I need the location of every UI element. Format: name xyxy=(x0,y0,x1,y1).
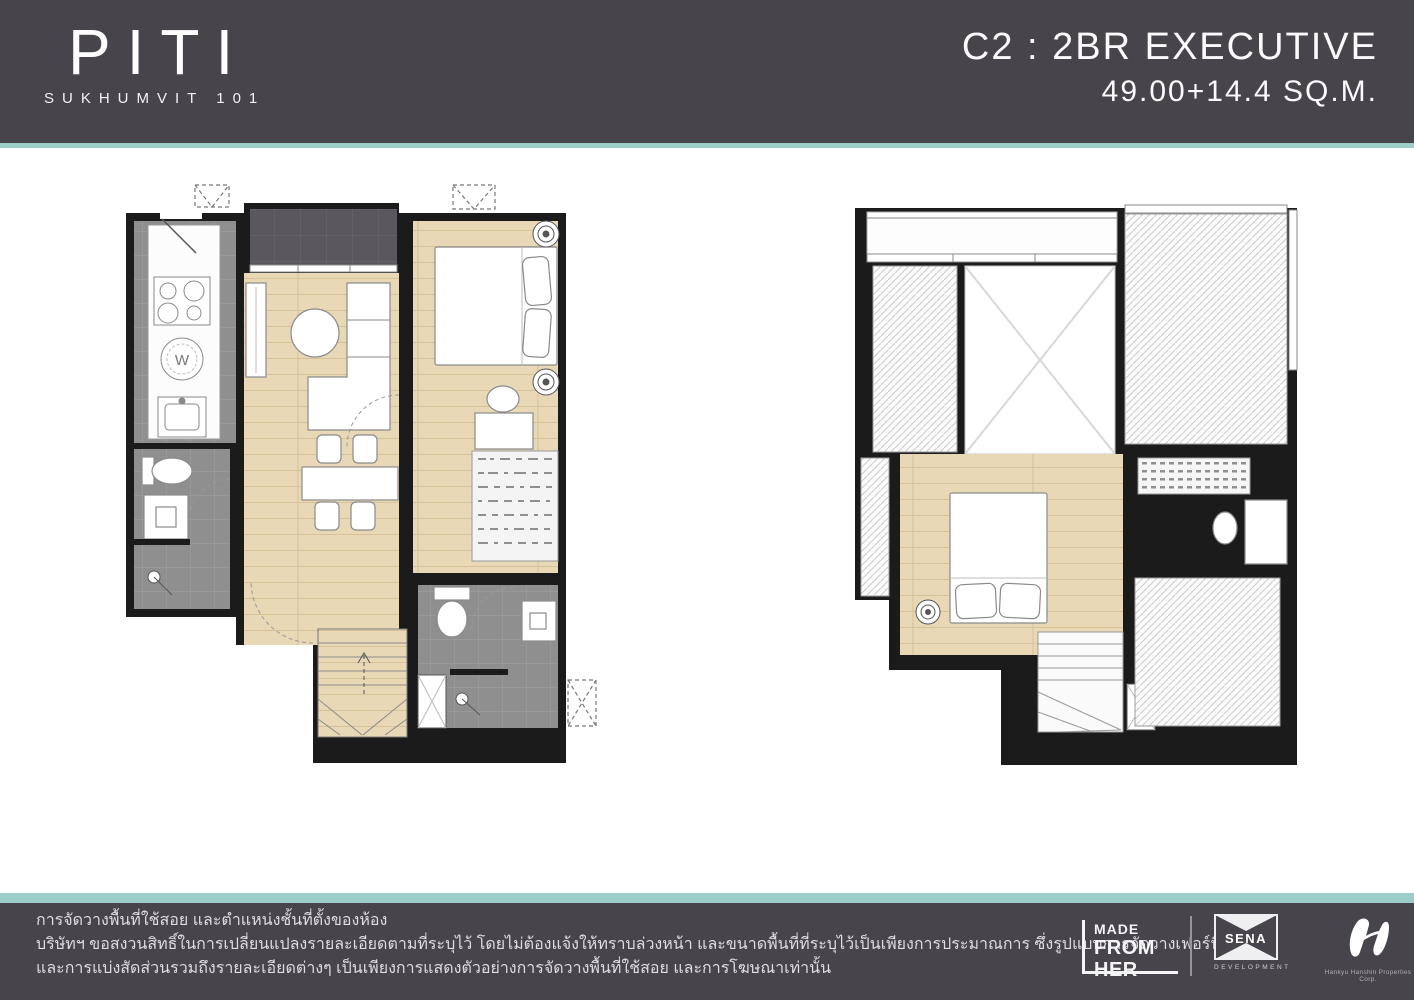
disclaimer-line: การจัดวางพื้นที่ใช้สอย และตำแหน่งชั้นที่… xyxy=(36,909,1254,933)
sliding-window xyxy=(250,265,397,272)
ceiling-downlight xyxy=(533,369,559,395)
bathroom-vanity xyxy=(522,601,556,641)
disclaimer-line: บริษัทฯ ขอสงวนสิทธิ์ในการเปลี่ยนแปลงรายล… xyxy=(36,933,1254,957)
living-dining-room xyxy=(244,273,399,645)
floor-plan-sheet: PITI SUKHUMVIT 101 C2 : 2BR EXECUTIVE 49… xyxy=(0,0,1414,1000)
brand-subtitle: SUKHUMVIT 101 xyxy=(44,90,265,107)
sena-subtitle: DEVELOPMENT xyxy=(1214,964,1278,971)
hankyu-hanshin-logo: Hankyu Hanshin Properties Corp. xyxy=(1316,916,1414,983)
unit-info: C2 : 2BR EXECUTIVE 49.00+14.4 SQ.M. xyxy=(962,26,1378,109)
upper-floor-plan xyxy=(853,196,1303,768)
lower-floor-plan: W xyxy=(118,183,618,768)
disclaimer-text: การจัดวางพื้นที่ใช้สอย และตำแหน่งชั้นที่… xyxy=(36,909,1254,981)
desk-chair xyxy=(1213,512,1237,544)
window-frame xyxy=(1125,205,1287,213)
desk xyxy=(1245,500,1287,564)
unit-area: 49.00+14.4 SQ.M. xyxy=(962,75,1378,109)
made-from-her-logo: MADE FROM HER xyxy=(1082,920,1178,974)
hankyu-caption: Hankyu Hanshin Properties Corp. xyxy=(1316,969,1414,983)
sena-logo-mark: SENA xyxy=(1214,914,1278,960)
disclaimer-line: และการแบ่งสัดส่วนรวมถึงรายละเอียดต่างๆ เ… xyxy=(36,957,1254,981)
ceiling-downlight xyxy=(916,600,940,624)
staircase xyxy=(318,629,407,737)
teal-divider xyxy=(0,893,1414,903)
ceiling-downlight xyxy=(533,221,559,247)
coffee-table xyxy=(291,309,339,357)
unit-title: C2 : 2BR EXECUTIVE xyxy=(962,26,1378,69)
brand-logo: PITI SUKHUMVIT 101 xyxy=(44,20,265,107)
vanity-desk xyxy=(475,413,533,449)
open-void-area xyxy=(1135,578,1280,726)
made-from-her-line1: MADE xyxy=(1094,922,1178,937)
stove xyxy=(154,277,210,325)
staircase xyxy=(1038,632,1123,732)
toilet xyxy=(142,457,192,485)
bedroom-1 xyxy=(413,221,559,573)
entry-door-gap xyxy=(160,209,202,219)
sena-logo: SENA DEVELOPMENT xyxy=(1214,914,1278,971)
sena-name: SENA xyxy=(1216,931,1276,946)
kitchen-sink xyxy=(158,397,206,437)
sliding-window xyxy=(867,254,1117,262)
washing-machine: W xyxy=(161,338,203,380)
double-volume-void xyxy=(965,266,1115,454)
open-void-area xyxy=(861,458,889,596)
balcony xyxy=(250,209,397,272)
logo-separator xyxy=(1190,916,1192,976)
sena-triangle-icon xyxy=(1217,916,1275,931)
header-bar: PITI SUKHUMVIT 101 C2 : 2BR EXECUTIVE 49… xyxy=(0,0,1414,148)
toilet xyxy=(434,587,470,637)
open-void-area xyxy=(873,266,957,452)
made-from-her-line2: FROM HER xyxy=(1094,937,1178,981)
bathroom-1 xyxy=(134,449,230,609)
balcony xyxy=(867,212,1117,262)
open-void-area xyxy=(1125,214,1287,444)
wardrobe xyxy=(1138,458,1250,494)
wardrobe xyxy=(472,451,558,561)
footer-bar: การจัดวางพื้นที่ใช้สอย และตำแหน่งชั้นที่… xyxy=(0,903,1414,1000)
washer-label: W xyxy=(175,352,190,369)
window-frame xyxy=(1289,210,1297,370)
hankyu-h-icon xyxy=(1342,916,1394,962)
stool xyxy=(487,386,519,412)
bathroom-2 xyxy=(418,585,558,728)
brand-name: PITI xyxy=(44,20,265,84)
bathroom-vanity xyxy=(144,495,188,539)
kitchen: W xyxy=(134,209,236,443)
